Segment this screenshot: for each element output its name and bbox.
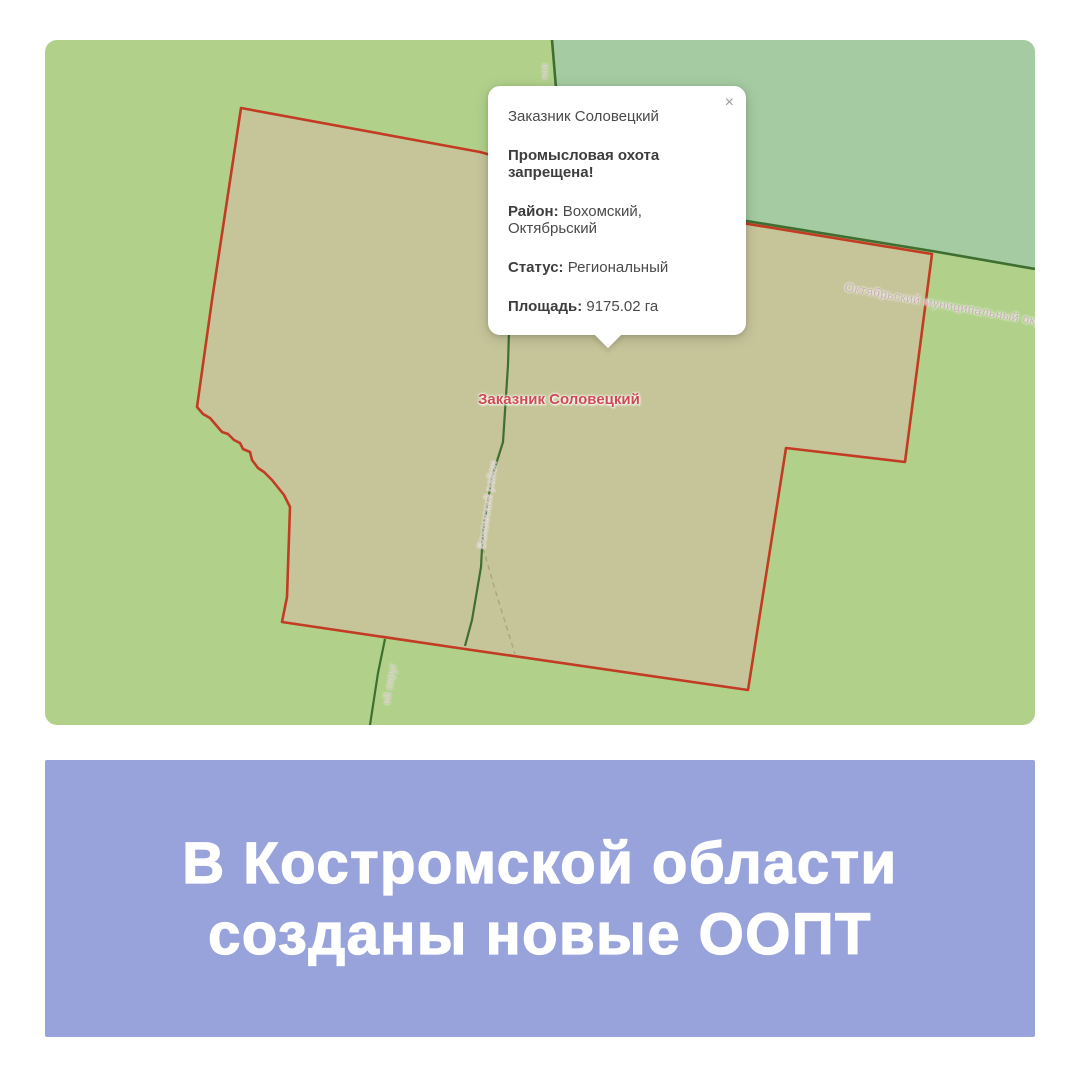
feature-popup: × Заказник Соловецкий Промысловая охота … [488, 86, 746, 335]
caption-banner: В Костромской области созданы новые ООПТ [45, 760, 1035, 1037]
district-boundary-line-south [370, 639, 385, 725]
caption-line-2: созданы новые ООПТ [208, 899, 872, 970]
close-icon[interactable]: × [725, 95, 734, 111]
popup-field-status-value: Региональный [568, 259, 669, 276]
popup-title: Заказник Соловецкий [508, 108, 728, 125]
caption-line-1: В Костромской области [182, 828, 897, 899]
popup-warning: Промысловая охота запрещена! [508, 147, 728, 181]
popup-field-status: Статус: Региональный [508, 259, 728, 276]
popup-field-area-label: Площадь: [508, 298, 582, 315]
popup-field-area: Площадь: 9175.02 га [508, 298, 728, 315]
popup-field-rayon-label: Район: [508, 203, 559, 220]
popup-field-rayon: Район: Вохомский, Октябрьский [508, 203, 728, 237]
popup-field-status-label: Статус: [508, 259, 564, 276]
map-canvas[interactable]: Заказник Соловецкий Октябрьский муниципа… [45, 40, 1035, 725]
popup-field-area-value: 9175.02 га [586, 298, 658, 315]
